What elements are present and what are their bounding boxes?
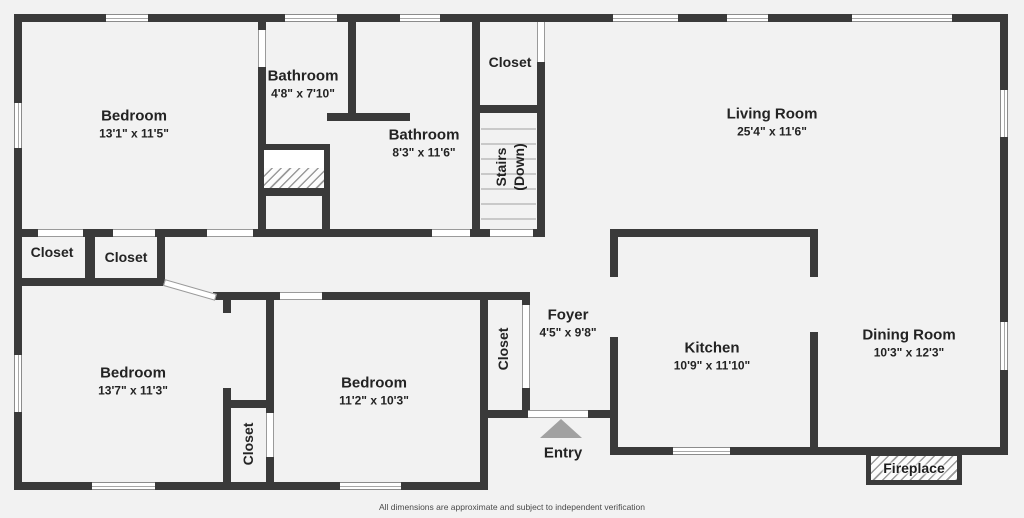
wall <box>348 22 356 117</box>
window <box>340 482 401 490</box>
wall <box>610 229 818 237</box>
bathtub <box>258 144 330 194</box>
door <box>113 229 155 237</box>
closet-label-2: Closet <box>105 248 148 266</box>
entry-label: Entry <box>544 445 582 462</box>
wall <box>522 292 530 305</box>
window <box>673 447 730 455</box>
door <box>207 229 253 237</box>
wall <box>610 337 618 455</box>
entry-arrow-icon <box>540 419 582 438</box>
window <box>1000 322 1008 370</box>
door <box>432 229 470 237</box>
room-label-bathroom-1: Bathroom 4'8" x 7'10" <box>268 66 339 101</box>
closet-door <box>266 413 274 457</box>
room-label-bedroom-2: Bedroom 13'7" x 11'3" <box>98 363 168 398</box>
disclaimer-text: All dimensions are approximate and subje… <box>0 502 1024 512</box>
wall <box>213 292 530 300</box>
door <box>537 22 545 62</box>
wall <box>322 188 330 237</box>
stair-tread <box>481 218 536 220</box>
fireplace-label: Fireplace <box>883 460 944 476</box>
fireplace: Fireplace <box>866 451 962 485</box>
wall <box>327 113 410 121</box>
stairs-label: Stairs (Down) <box>492 143 528 190</box>
door <box>38 229 83 237</box>
window <box>92 482 155 490</box>
front-door <box>528 410 588 418</box>
wall <box>14 482 488 490</box>
window <box>14 355 22 412</box>
wall <box>472 14 480 237</box>
stair-tread <box>481 128 536 130</box>
window <box>727 14 768 22</box>
closet-label-1: Closet <box>31 243 74 261</box>
wall <box>472 105 545 113</box>
wall <box>85 229 95 286</box>
window <box>400 14 440 22</box>
wall <box>810 332 818 455</box>
room-label-bathroom-2: Bathroom 8'3" x 11'6" <box>389 125 460 160</box>
stairs-opening <box>490 229 533 237</box>
room-label-living-room: Living Room 25'4" x 11'6" <box>727 104 818 139</box>
door <box>163 279 217 301</box>
closet-label-foyer: Closet <box>494 328 512 371</box>
closet-door <box>522 305 530 388</box>
wall <box>157 229 165 286</box>
wall <box>610 229 618 277</box>
wall <box>223 400 274 408</box>
room-label-foyer: Foyer 4'5" x 9'8" <box>539 305 596 340</box>
wall <box>480 292 488 490</box>
window <box>613 14 678 22</box>
door <box>258 30 266 67</box>
bathtub-basin <box>264 168 324 188</box>
window <box>1000 90 1008 137</box>
wall <box>1000 14 1008 455</box>
wall <box>14 14 22 490</box>
wall <box>810 229 818 277</box>
window <box>14 103 22 148</box>
wall <box>223 298 231 313</box>
door <box>280 292 322 300</box>
window <box>106 14 148 22</box>
room-label-kitchen: Kitchen 10'9" x 11'10" <box>674 338 750 373</box>
floor-plan: Fireplace Bedroom 13'1" x 11'5" Bathroom… <box>0 0 1024 518</box>
window <box>285 14 337 22</box>
closet-label-top: Closet <box>489 53 532 71</box>
room-label-dining-room: Dining Room 10'3" x 12'3" <box>862 325 955 360</box>
room-label-bedroom-1: Bedroom 13'1" x 11'5" <box>99 106 169 141</box>
closet-label-mid: Closet <box>239 423 257 466</box>
room-label-bedroom-3: Bedroom 11'2" x 10'3" <box>339 373 409 408</box>
window <box>852 14 952 22</box>
stair-tread <box>481 203 536 205</box>
